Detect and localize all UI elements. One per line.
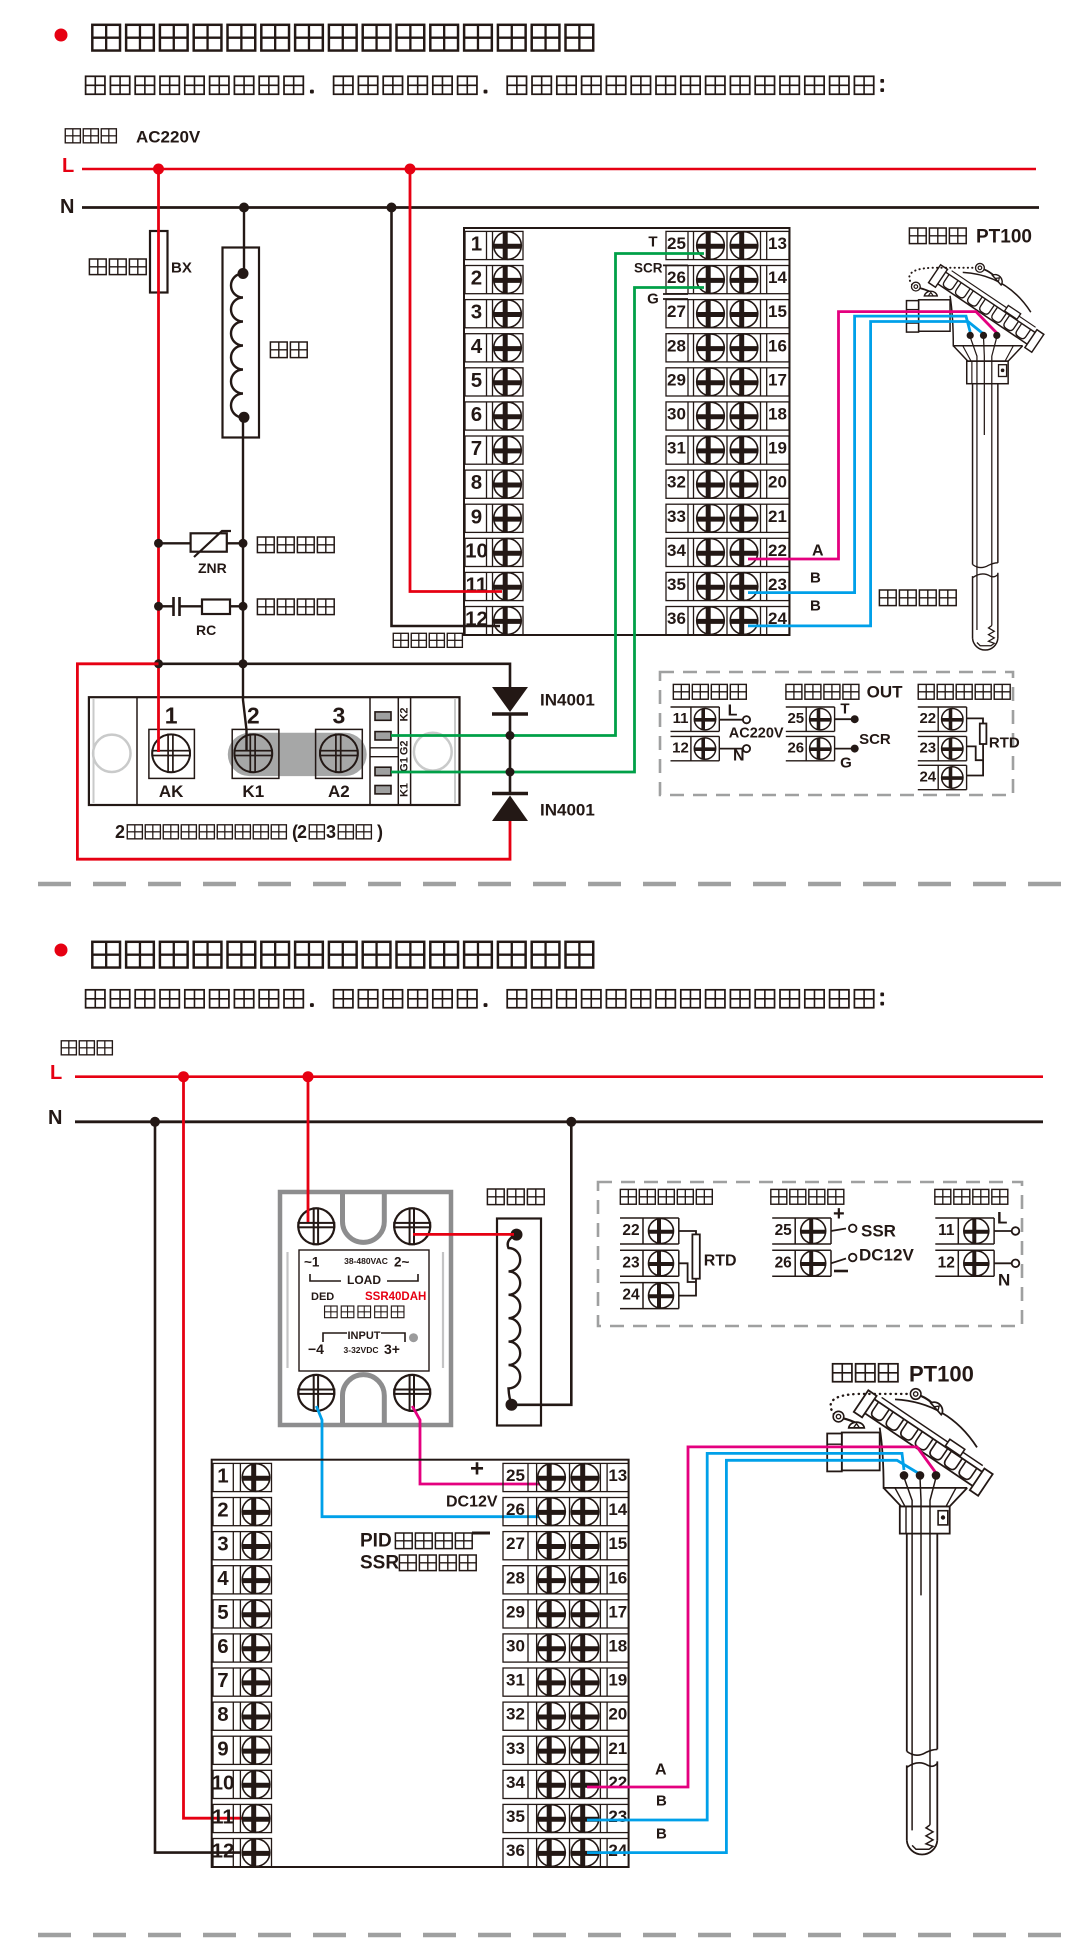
svg-text:26: 26	[775, 1254, 793, 1271]
svg-text:IN4001: IN4001	[540, 801, 595, 820]
svg-text:3+: 3+	[384, 1341, 400, 1357]
svg-text:36: 36	[506, 1841, 525, 1860]
svg-text:23: 23	[622, 1254, 640, 1271]
svg-text:31: 31	[506, 1671, 525, 1690]
svg-text:AK: AK	[159, 782, 184, 801]
svg-text:PT100: PT100	[909, 1362, 974, 1387]
svg-text:PT100: PT100	[976, 227, 1032, 248]
svg-text:26: 26	[787, 740, 804, 757]
svg-text:23: 23	[608, 1807, 627, 1826]
svg-text:24: 24	[608, 1841, 627, 1860]
svg-text:3-32VDC: 3-32VDC	[344, 1345, 379, 1355]
svg-text:G: G	[840, 755, 852, 772]
svg-text:SSR40DAH: SSR40DAH	[365, 1291, 426, 1303]
svg-text:T: T	[648, 234, 657, 251]
svg-text:14: 14	[608, 1500, 627, 1519]
svg-text:31: 31	[667, 439, 686, 458]
svg-text:11: 11	[938, 1222, 955, 1239]
svg-text:B: B	[810, 570, 821, 587]
svg-text:2: 2	[115, 822, 125, 842]
svg-text:33: 33	[506, 1739, 525, 1758]
svg-text:RTD: RTD	[989, 735, 1020, 752]
svg-text:24: 24	[919, 769, 936, 786]
svg-text:5: 5	[217, 1601, 228, 1624]
svg-text:30: 30	[506, 1637, 525, 1656]
svg-text:+: +	[833, 1203, 845, 1225]
svg-text:13: 13	[608, 1466, 627, 1485]
svg-text:L: L	[997, 1209, 1007, 1228]
svg-text:28: 28	[506, 1568, 525, 1587]
svg-text:9: 9	[471, 505, 482, 528]
svg-text:A2: A2	[328, 782, 350, 801]
svg-text:26: 26	[667, 268, 686, 287]
svg-text:18: 18	[608, 1637, 627, 1656]
svg-text:T: T	[840, 701, 849, 718]
svg-text:6: 6	[471, 403, 482, 426]
svg-text:6: 6	[217, 1635, 228, 1658]
svg-text:2: 2	[217, 1499, 228, 1522]
svg-text:26: 26	[506, 1500, 525, 1519]
svg-text:22: 22	[622, 1222, 639, 1239]
svg-text:N: N	[48, 1107, 62, 1129]
svg-text:38-480VAC: 38-480VAC	[344, 1256, 388, 1266]
svg-text:3: 3	[326, 822, 336, 842]
svg-text:IN4001: IN4001	[540, 691, 595, 710]
svg-text:DC12V: DC12V	[446, 1494, 498, 1511]
svg-text:34: 34	[506, 1773, 525, 1792]
svg-text:35: 35	[506, 1807, 525, 1826]
svg-text:22: 22	[768, 541, 787, 560]
svg-text:10: 10	[212, 1771, 235, 1794]
svg-text:2~: 2~	[394, 1255, 410, 1270]
svg-text:25: 25	[787, 710, 804, 727]
svg-text:7: 7	[471, 437, 482, 460]
svg-text:K1: K1	[242, 782, 264, 801]
svg-text:25: 25	[506, 1466, 525, 1485]
svg-text:3: 3	[217, 1533, 228, 1556]
svg-text:8: 8	[471, 471, 482, 494]
svg-text:L: L	[62, 155, 74, 177]
svg-text:21: 21	[768, 507, 787, 526]
svg-text:G2: G2	[399, 740, 411, 755]
svg-text:5: 5	[471, 369, 482, 392]
svg-text:25: 25	[667, 234, 686, 253]
svg-text:10: 10	[465, 539, 488, 562]
svg-text:22: 22	[608, 1773, 627, 1792]
svg-text:OUT: OUT	[867, 683, 904, 702]
svg-text:14: 14	[768, 268, 787, 287]
svg-text:B: B	[810, 598, 821, 615]
svg-text:15: 15	[768, 302, 787, 321]
svg-text:28: 28	[667, 336, 686, 355]
svg-text:15: 15	[608, 1534, 627, 1553]
svg-text:25: 25	[775, 1222, 793, 1239]
svg-text:B: B	[656, 1826, 667, 1843]
svg-text:20: 20	[768, 473, 787, 492]
svg-text:PID: PID	[360, 1531, 392, 1552]
svg-text:12: 12	[672, 740, 689, 757]
svg-text:2: 2	[471, 267, 482, 290]
svg-text:2: 2	[297, 822, 307, 842]
svg-text:22: 22	[919, 710, 936, 727]
svg-text:DED: DED	[311, 1291, 334, 1303]
svg-text:19: 19	[608, 1671, 627, 1690]
svg-text:ZNR: ZNR	[198, 560, 227, 576]
svg-text:34: 34	[667, 541, 686, 560]
svg-text:9: 9	[217, 1737, 228, 1760]
svg-text:G: G	[647, 291, 659, 308]
svg-text:4: 4	[217, 1567, 229, 1590]
svg-text:27: 27	[667, 302, 686, 321]
svg-text:16: 16	[608, 1568, 627, 1587]
svg-text:3: 3	[471, 301, 482, 324]
svg-text:2: 2	[247, 703, 260, 729]
svg-text:32: 32	[506, 1705, 525, 1724]
svg-text:13: 13	[768, 234, 787, 253]
svg-text:7: 7	[217, 1669, 228, 1692]
svg-text:INPUT: INPUT	[348, 1330, 381, 1342]
svg-text:21: 21	[608, 1739, 627, 1758]
svg-text:29: 29	[667, 370, 686, 389]
svg-text:16: 16	[768, 336, 787, 355]
svg-text:11: 11	[212, 1806, 234, 1829]
svg-text:−4: −4	[308, 1341, 324, 1357]
svg-text:N: N	[733, 748, 745, 765]
svg-text:1: 1	[471, 233, 482, 256]
svg-text:33: 33	[667, 507, 686, 526]
svg-text:11: 11	[673, 710, 689, 727]
svg-text:1: 1	[165, 703, 178, 729]
svg-text:3: 3	[333, 703, 346, 729]
svg-text:LOAD: LOAD	[347, 1273, 381, 1287]
svg-text:A: A	[655, 1762, 667, 1779]
svg-text:27: 27	[506, 1534, 525, 1553]
svg-text:SSR: SSR	[861, 1222, 896, 1241]
svg-text:B: B	[656, 1793, 667, 1810]
svg-text:24: 24	[622, 1287, 640, 1304]
svg-text:~1: ~1	[304, 1255, 320, 1270]
svg-text:K1: K1	[399, 783, 411, 797]
svg-text:): )	[377, 822, 383, 842]
svg-text:23: 23	[768, 575, 787, 594]
svg-text:N: N	[60, 196, 74, 218]
svg-text:1: 1	[217, 1465, 228, 1488]
svg-text:12: 12	[938, 1254, 955, 1271]
svg-text:AC220V: AC220V	[729, 726, 784, 742]
svg-text:17: 17	[768, 370, 787, 389]
svg-text:K2: K2	[399, 707, 411, 721]
svg-text:A: A	[812, 543, 824, 560]
svg-text:35: 35	[667, 575, 686, 594]
svg-text:18: 18	[768, 405, 787, 424]
svg-text:L: L	[728, 703, 738, 720]
svg-text:8: 8	[217, 1703, 228, 1726]
svg-text:17: 17	[608, 1602, 627, 1621]
svg-text:DC12V: DC12V	[859, 1246, 914, 1265]
svg-text:L: L	[50, 1062, 62, 1084]
svg-text:RC: RC	[196, 622, 216, 638]
svg-text:N: N	[998, 1271, 1010, 1290]
svg-text:BX: BX	[171, 260, 192, 277]
svg-text:SCR: SCR	[859, 731, 891, 748]
svg-text:11: 11	[466, 574, 488, 597]
svg-text:32: 32	[667, 473, 686, 492]
svg-text:12: 12	[212, 1840, 235, 1863]
svg-text:4: 4	[471, 335, 483, 358]
svg-text:29: 29	[506, 1602, 525, 1621]
svg-text:19: 19	[768, 439, 787, 458]
svg-text:RTD: RTD	[704, 1253, 737, 1270]
svg-text:23: 23	[919, 740, 936, 757]
svg-text:36: 36	[667, 609, 686, 628]
svg-text:G1: G1	[399, 757, 411, 772]
svg-text:SCR: SCR	[634, 261, 663, 276]
svg-text:30: 30	[667, 405, 686, 424]
svg-text:SSR: SSR	[360, 1553, 399, 1574]
svg-text:AC220V: AC220V	[136, 128, 201, 147]
svg-text:20: 20	[608, 1705, 627, 1724]
